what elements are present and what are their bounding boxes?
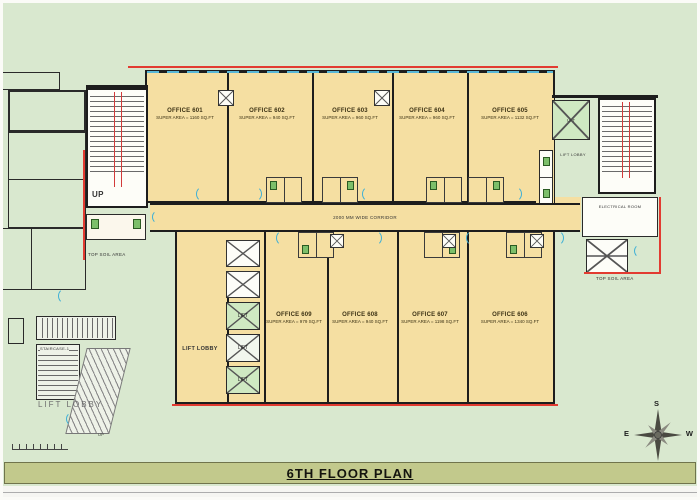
office-partition-wall bbox=[312, 73, 314, 201]
door-swing-icon bbox=[362, 186, 378, 202]
toilet-pod bbox=[298, 232, 334, 258]
column-shaft bbox=[330, 234, 344, 248]
boundary-line bbox=[128, 66, 558, 68]
adjacent-structure-room bbox=[8, 90, 86, 132]
toilet-fixture-icon bbox=[91, 219, 99, 229]
shaft-x-icon bbox=[219, 91, 233, 105]
toilet-fixture-icon bbox=[347, 181, 354, 190]
pod-partition bbox=[284, 178, 285, 202]
office-area: SUPER AREA = 940 SQ.FT bbox=[222, 115, 312, 120]
detail-stair-flight bbox=[36, 344, 80, 400]
column-shaft bbox=[530, 234, 544, 248]
compass-rose: S E W N bbox=[630, 404, 686, 466]
shaft-x-icon bbox=[227, 241, 259, 266]
compass-s-label: S bbox=[654, 399, 659, 408]
toilet-room bbox=[86, 214, 146, 240]
toilet-fixture-icon bbox=[270, 181, 277, 190]
office-604-label: OFFICE 604 SUPER AREA = 960 SQ.FT bbox=[382, 108, 472, 120]
boundary-line bbox=[83, 150, 85, 260]
lift-lobby-label: LIFT LOBBY bbox=[176, 346, 224, 352]
boundary-line bbox=[172, 404, 558, 406]
column-shaft bbox=[218, 90, 234, 106]
toilet-pod bbox=[266, 177, 302, 203]
shaft-x-icon bbox=[375, 91, 389, 105]
office-area: SUPER AREA = 960 SQ.FT bbox=[382, 115, 472, 120]
title-bar: 6TH FLOOR PLAN bbox=[4, 462, 696, 484]
stair-treads bbox=[38, 346, 78, 398]
pod-partition bbox=[316, 233, 317, 257]
pod-partition bbox=[340, 178, 341, 202]
toilet-fixture-icon bbox=[430, 181, 437, 190]
lift-shaft: LIFT bbox=[226, 334, 260, 362]
toilet-fixture-icon bbox=[543, 157, 550, 166]
door-swing-icon bbox=[196, 186, 212, 202]
office-name: OFFICE 607 bbox=[385, 312, 475, 318]
adjacent-structure-room bbox=[0, 72, 60, 90]
office-name: OFFICE 606 bbox=[465, 312, 555, 318]
door-swing-icon bbox=[366, 230, 382, 246]
office-602-label: OFFICE 602 SUPER AREA = 940 SQ.FT bbox=[222, 108, 312, 120]
office-area: SUPER AREA = 1160 SQ.FT bbox=[140, 115, 230, 120]
adjacent-structure-room bbox=[8, 132, 86, 228]
corridor: 2000 MM WIDE CORRIDOR bbox=[150, 203, 580, 232]
plan-title: 6TH FLOOR PLAN bbox=[287, 466, 414, 481]
adjacent-structure-room bbox=[0, 228, 86, 290]
up-label: UP bbox=[92, 190, 104, 199]
office-area: SUPER AREA = 1340 SQ.FT bbox=[465, 319, 555, 324]
stair-stringer bbox=[622, 102, 630, 178]
lift-lobby-small-label: LIFT LOBBY bbox=[552, 152, 594, 157]
lift-label: LIFT bbox=[553, 118, 589, 123]
service-shaft bbox=[226, 271, 260, 298]
electrical-room-label: ELECTRICAL ROOM bbox=[583, 204, 657, 209]
boundary-line bbox=[659, 197, 661, 274]
shaft-x-icon bbox=[227, 272, 259, 297]
toilet-fixture-icon bbox=[543, 189, 550, 198]
door-swing-icon bbox=[152, 210, 166, 224]
stair-treads bbox=[38, 318, 114, 338]
toilet-pod bbox=[322, 177, 358, 203]
column-shaft bbox=[442, 234, 456, 248]
office-name: OFFICE 604 bbox=[382, 108, 472, 114]
door-swing-icon bbox=[466, 230, 482, 246]
office-605-label: OFFICE 605 SUPER AREA = 1132 SQ.FT bbox=[465, 108, 555, 120]
office-area: SUPER AREA = 1132 SQ.FT bbox=[465, 115, 555, 120]
boundary-line bbox=[584, 272, 661, 274]
top-soil-label: TOP SOIL AREA bbox=[596, 276, 668, 281]
staircase bbox=[598, 98, 656, 194]
compass-w-label: W bbox=[686, 429, 693, 438]
top-soil-label: TOP SOIL AREA bbox=[88, 252, 160, 257]
office-name: OFFICE 601 bbox=[140, 108, 230, 114]
office-607-label: OFFICE 607 SUPER AREA = 1198 SQ.FT bbox=[385, 312, 475, 324]
door-swing-icon bbox=[506, 186, 522, 202]
toilet-pod bbox=[468, 177, 504, 203]
lift-label: LIFT bbox=[227, 377, 259, 383]
column-shaft bbox=[374, 90, 390, 106]
shaft-x-icon bbox=[443, 235, 455, 247]
detail-stair-flight bbox=[36, 316, 116, 340]
detail-small-room bbox=[8, 318, 24, 344]
compass-star-icon bbox=[630, 404, 686, 466]
wc-cubicles bbox=[539, 150, 553, 205]
office-partition-wall bbox=[392, 73, 394, 201]
toilet-fixture-icon bbox=[493, 181, 500, 190]
toilet-pod bbox=[426, 177, 462, 203]
office-name: OFFICE 605 bbox=[465, 108, 555, 114]
corridor-label: 2000 MM WIDE CORRIDOR bbox=[333, 215, 397, 220]
shaft-x-icon bbox=[531, 235, 543, 247]
lift-shaft: LIFT bbox=[552, 100, 590, 140]
toilet-fixture-icon bbox=[302, 245, 309, 254]
office-606-label: OFFICE 606 SUPER AREA = 1340 SQ.FT bbox=[465, 312, 555, 324]
door-swing-icon bbox=[58, 288, 74, 304]
door-swing-icon bbox=[66, 412, 80, 426]
compass-e-label: E bbox=[624, 429, 629, 438]
border-rule bbox=[0, 492, 700, 493]
pod-partition bbox=[444, 178, 445, 202]
electrical-room: ELECTRICAL ROOM bbox=[582, 197, 658, 237]
door-swing-icon bbox=[246, 186, 262, 202]
office-area: SUPER AREA = 1198 SQ.FT bbox=[385, 319, 475, 324]
pod-partition bbox=[524, 233, 525, 257]
toilet-fixture-icon bbox=[510, 245, 517, 254]
lift-label: LIFT bbox=[227, 345, 259, 351]
stair-stringer bbox=[114, 92, 122, 187]
pod-partition bbox=[486, 178, 487, 202]
lift-shaft: LIFT bbox=[226, 366, 260, 394]
office-name: OFFICE 602 bbox=[222, 108, 312, 114]
service-shaft bbox=[586, 239, 628, 273]
window-strip bbox=[147, 71, 553, 73]
shaft-x-icon bbox=[331, 235, 343, 247]
floor-plan-canvas: OFFICE 601 SUPER AREA = 1160 SQ.FT OFFIC… bbox=[0, 0, 700, 500]
door-swing-icon bbox=[548, 230, 564, 246]
wall-line bbox=[9, 179, 85, 180]
detail-lift-lobby-label: LIFT LOBBY bbox=[38, 400, 103, 409]
service-shaft bbox=[226, 240, 260, 267]
detail-scale-ticks bbox=[12, 444, 68, 450]
staircase-detail-label: STAIRCASE-1 bbox=[40, 346, 69, 351]
wall-line bbox=[540, 177, 552, 178]
detail-up-label: UP bbox=[98, 432, 104, 437]
toilet-fixture-icon bbox=[133, 219, 141, 229]
shaft-x-icon bbox=[587, 240, 627, 272]
office-601-label: OFFICE 601 SUPER AREA = 1160 SQ.FT bbox=[140, 108, 230, 120]
door-swing-icon bbox=[276, 230, 292, 246]
door-swing-icon bbox=[634, 244, 648, 258]
wall-line bbox=[31, 229, 32, 289]
